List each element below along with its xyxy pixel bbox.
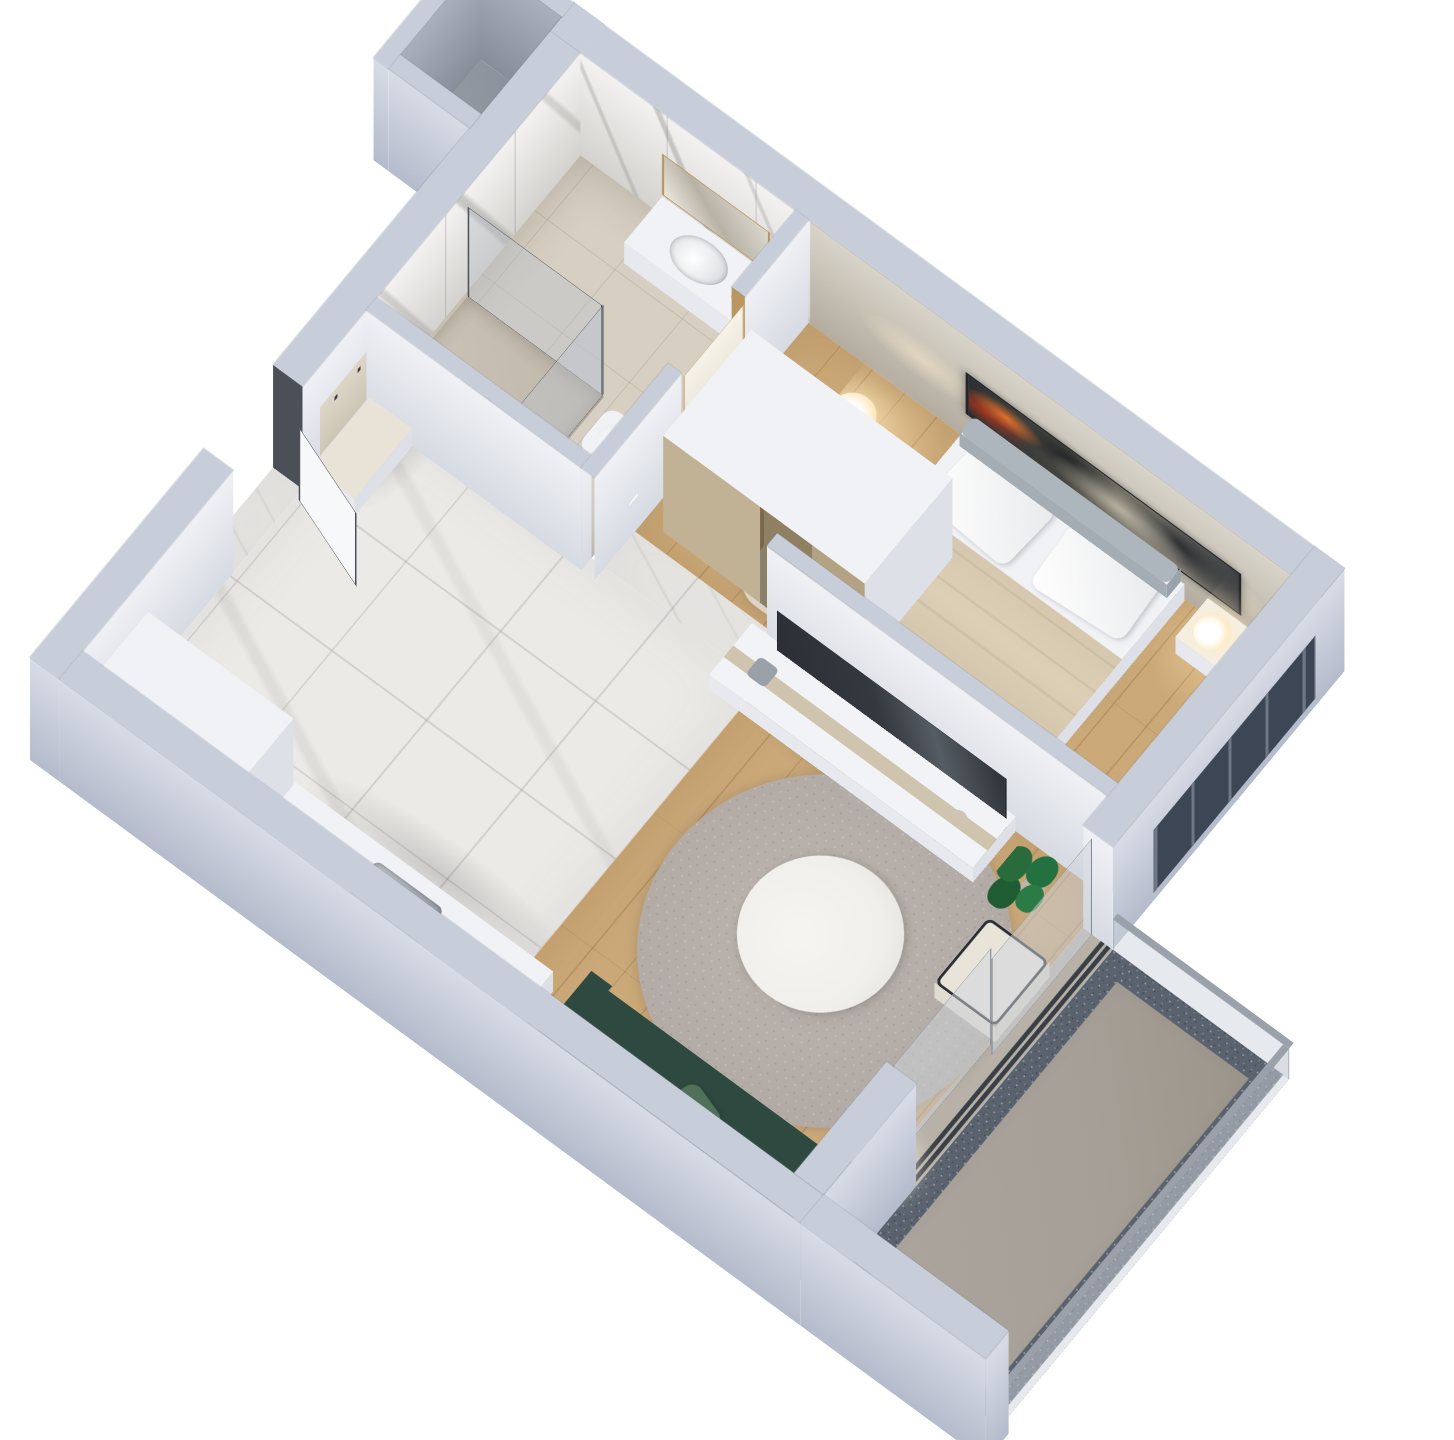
wall-outer-face <box>374 57 389 171</box>
wall-mount-decor <box>745 656 779 688</box>
light-switch <box>629 493 638 507</box>
figurine <box>949 807 970 827</box>
apartment-3d-render <box>0 0 1454 1440</box>
